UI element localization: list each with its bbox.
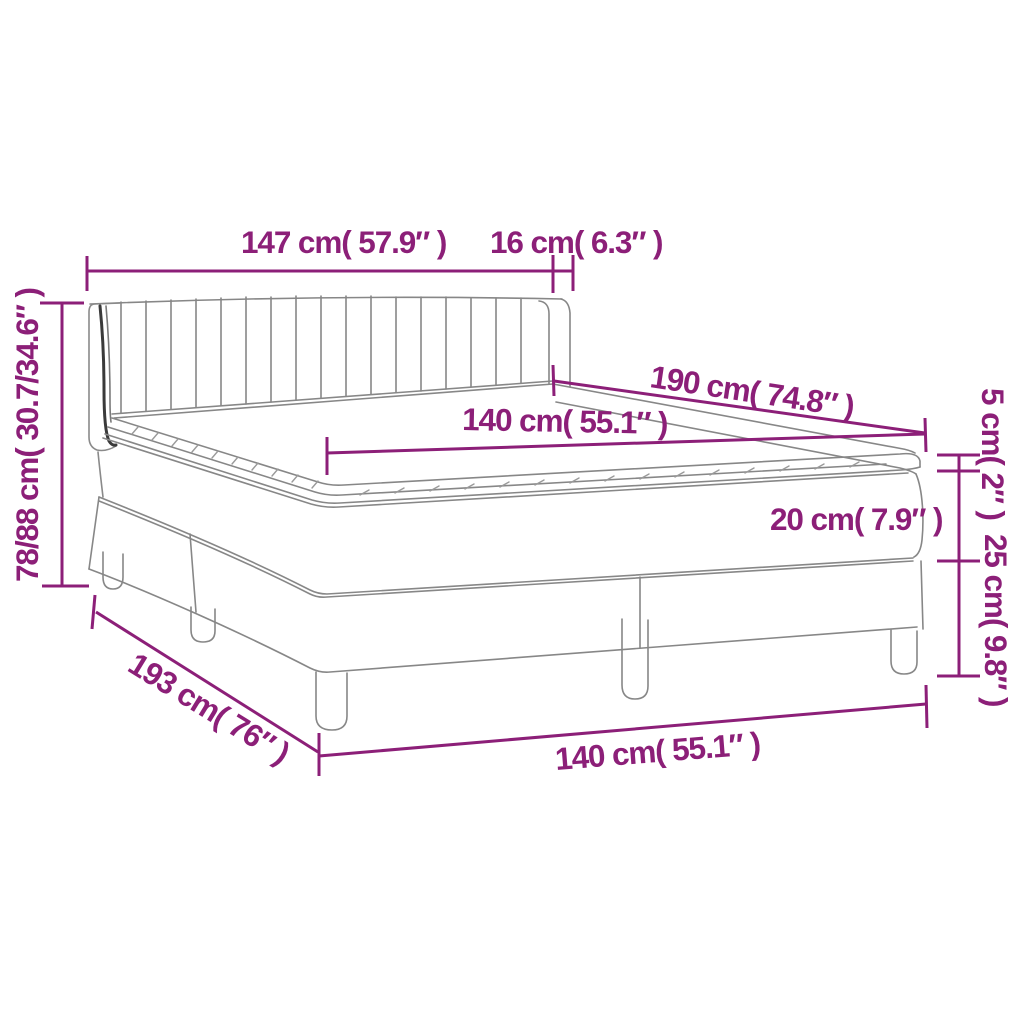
svg-text:20 cm( 7.9″ ): 20 cm( 7.9″ ) — [770, 501, 942, 537]
svg-text:140 cm( 55.1″ ): 140 cm( 55.1″ ) — [462, 401, 668, 441]
svg-text:147 cm( 57.9″ ): 147 cm( 57.9″ ) — [241, 224, 446, 260]
svg-text:25 cm( 9.8″ ): 25 cm( 9.8″ ) — [978, 534, 1014, 706]
svg-text:16 cm( 6.3″ ): 16 cm( 6.3″ ) — [490, 224, 662, 260]
svg-text:78/88 cm( 30.7/34.6″ ): 78/88 cm( 30.7/34.6″ ) — [9, 288, 45, 582]
svg-text:5 cm( 2″ ): 5 cm( 2″ ) — [975, 388, 1011, 520]
